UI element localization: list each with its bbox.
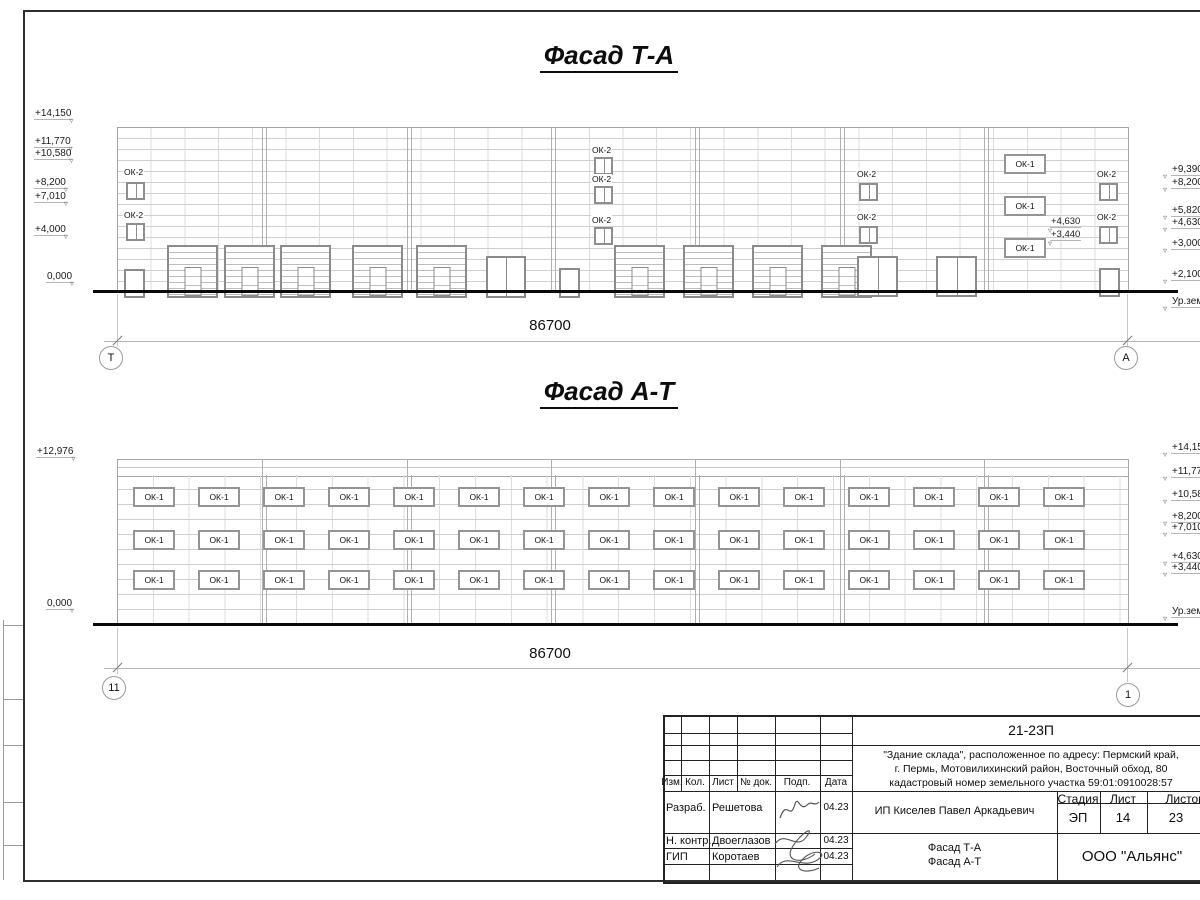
level-mark-icon: ▿ [1163,277,1167,286]
level-label: +8,200▿ [34,177,67,188]
facade-at-title: Фасад А-Т [479,376,739,407]
ok1-window: ОК-1 [328,570,370,590]
level-mark-icon: ▿ [64,199,68,208]
ok2-window [859,183,878,201]
level-mark-icon: ▿ [1163,172,1167,181]
ok1-window: ОК-1 [523,570,565,590]
ok2-window [594,227,613,245]
ok1-window: ОК-1 [1043,530,1085,550]
ok1-window: ОК-1 [1004,238,1046,258]
level-label: +10,580▿ [1171,489,1200,500]
ok1-window: ОК-1 [718,570,760,590]
ok1-window: ОК-1 [1004,196,1046,216]
level-mark-icon: ▿ [1163,450,1167,459]
level-label: +3,000▿ [1171,238,1200,249]
titleblock-date: 04.23 [818,835,854,846]
level-label: +11,770▿ [1171,466,1200,477]
ok1-window: ОК-1 [328,530,370,550]
parapet-joint [262,460,263,476]
ok1-window: ОК-1 [1043,487,1085,507]
titleblock-organization: ООО "Альянс" [1057,848,1200,865]
level-label: +9,390▿ [1171,164,1200,175]
level-label: +4,630▿ [1171,551,1200,562]
ok1-window: ОК-1 [718,530,760,550]
titleblock-name: Коротаев [712,851,760,863]
parapet-joint [840,460,841,476]
ok2-window-label: ОК-2 [591,215,612,225]
binding-strip-line [3,625,23,626]
titleblock-line [709,715,710,880]
ok1-window: ОК-1 [263,530,305,550]
ok2-window-label: ОК-2 [1096,212,1117,222]
titleblock-line [663,760,852,761]
ok1-window: ОК-1 [458,530,500,550]
ok2-window-label: ОК-2 [856,169,877,179]
ok2-window [1099,183,1118,201]
dimension-label: 86700 [495,645,605,662]
titleblock-stage-value: 14 [1093,810,1153,825]
binding-strip-line [3,620,4,880]
titleblock-name: Решетова [712,802,762,814]
titleblock-client: ИП Киселев Павел Аркадьевич [852,805,1057,817]
facade-ta-title: Фасад Т-А [479,40,739,71]
level-label: 0,000▿ [46,598,73,609]
bay-joint [695,475,700,625]
level-annotation: +4,630▿ [1050,216,1081,227]
level-label: +4,630▿ [1171,217,1200,228]
level-mark-icon: ▿ [1163,530,1167,539]
level-mark-icon: ▿ [70,606,74,615]
ok1-window: ОК-1 [393,570,435,590]
ok1-window: ОК-1 [848,487,890,507]
ok2-window [126,182,145,200]
ok1-window: ОК-1 [198,487,240,507]
ok2-window [594,157,613,175]
ok2-window-label: ОК-2 [123,210,144,220]
dimension-line [104,341,1200,342]
titleblock-column-header: Дата [814,777,858,788]
ok1-window: ОК-1 [588,487,630,507]
ok1-window: ОК-1 [263,487,305,507]
titleblock-stage-value: 23 [1146,810,1200,825]
parapet-joint [695,460,696,476]
ok1-window: ОК-1 [198,530,240,550]
ok1-window: ОК-1 [588,530,630,550]
ok1-window: ОК-1 [1004,154,1046,174]
level-label: +2,100▿ [1171,269,1200,280]
level-annotation: +3,440▿ [1050,229,1081,240]
level-mark-icon: ▿ [1163,246,1167,255]
ok1-window: ОК-1 [523,530,565,550]
level-mark-icon: ▿ [1163,213,1167,222]
level-label: +14,150▿ [34,108,72,119]
level-label: +11,770▿ [34,136,72,147]
ok1-window: ОК-1 [978,487,1020,507]
grid-bubble-1: 1 [1116,683,1140,707]
level-mark-icon: ▿ [1163,519,1167,528]
titleblock-role: Разраб. [666,802,706,814]
ok1-window: ОК-1 [978,530,1020,550]
ok1-window: ОК-1 [783,570,825,590]
binding-strip-line [3,802,23,803]
titleblock-column-header: № док. [734,777,778,788]
ok2-window-label: ОК-2 [591,145,612,155]
level-label: +8,200▿ [1171,177,1200,188]
level-mark-icon: ▿ [1163,497,1167,506]
ok1-window: ОК-1 [198,570,240,590]
ok1-window: ОК-1 [783,530,825,550]
titleblock-description: "Здание склада", расположенное по адресу… [854,748,1200,790]
ok2-window [859,226,878,244]
titleblock-column-header: Подп. [775,777,819,788]
ok1-window: ОК-1 [458,487,500,507]
level-label: +8,200▿ [1171,511,1200,522]
level-mark-icon: ▿ [71,454,75,463]
level-label: +12,976▿ [36,446,74,457]
ground-line [93,290,1178,293]
level-mark-icon: ▿ [1163,559,1167,568]
level-mark-icon: ▿ [1163,225,1167,234]
level-mark-icon: ▿ [1163,614,1167,623]
ok1-window: ОК-1 [1043,570,1085,590]
bay-joint [840,475,845,625]
ok1-window: ОК-1 [133,530,175,550]
level-mark-icon: ▿ [64,232,68,241]
binding-strip-line [3,845,23,846]
level-label: 0,000▿ [46,271,73,282]
ok2-window [1099,226,1118,244]
level-label: +14,150▿ [1171,442,1200,453]
level-mark-icon: ▿ [1163,185,1167,194]
parapet-joint [551,460,552,476]
ok1-window: ОК-1 [653,487,695,507]
titleblock-sheet-title: Фасад Т-А Фасад А-Т [852,841,1057,869]
ok1-window: ОК-1 [913,530,955,550]
level-mark-icon: ▿ [1163,570,1167,579]
level-mark-icon: ▿ [69,116,73,125]
ok2-window [594,186,613,204]
level-label: +7,010▿ [1171,522,1200,533]
titleblock-date: 04.23 [818,851,854,862]
level-label: +4,000▿ [34,224,67,235]
titleblock-line [663,833,1200,834]
drawing-sheet: { "colors": { "ink": "#1a1a1a", "drawing… [0,0,1200,900]
ok2-window [126,223,145,241]
titleblock-stage-header: Лист [1093,792,1153,806]
level-mark-icon: ▿ [1163,304,1167,313]
entrance-door [124,269,145,298]
level-label: +3,440▿ [1171,562,1200,573]
ok1-window: ОК-1 [848,570,890,590]
ok1-window: ОК-1 [913,487,955,507]
titleblock-role: Н. контр. [666,835,711,847]
extension-line [1127,628,1128,682]
titleblock-stage-header: Листов [1155,792,1200,806]
ok1-window: ОК-1 [848,530,890,550]
level-mark-icon: ▿ [1163,474,1167,483]
ok1-window: ОК-1 [718,487,760,507]
parapet-joint [407,460,408,476]
ground-line [93,623,1178,626]
ok1-window: ОК-1 [393,530,435,550]
ok1-window: ОК-1 [263,570,305,590]
titleblock-name: Двоеглазов [712,835,770,847]
ok1-window: ОК-1 [653,570,695,590]
dimension-label: 86700 [495,317,605,334]
ok2-window-label: ОК-2 [591,174,612,184]
grid-bubble-t: Т [99,346,123,370]
level-label: Ур.земли▿ [1171,606,1200,617]
grid-bubble-11: 11 [102,676,126,700]
ok1-window: ОК-1 [653,530,695,550]
ok1-window: ОК-1 [783,487,825,507]
titleblock-line [663,733,852,734]
ok1-window: ОК-1 [328,487,370,507]
level-label: Ур.земли▿ [1171,296,1200,307]
ok1-window: ОК-1 [588,570,630,590]
parapet-joint [984,460,985,476]
ok1-window: ОК-1 [458,570,500,590]
bay-joint [984,128,989,293]
ok2-window-label: ОК-2 [1096,169,1117,179]
ok2-window-label: ОК-2 [856,212,877,222]
facade-at-drawing: ОК-1ОК-1ОК-1ОК-1ОК-1ОК-1ОК-1ОК-1ОК-1ОК-1… [117,475,1129,625]
level-label: +7,010▿ [34,191,67,202]
ok1-window: ОК-1 [393,487,435,507]
titleblock-line [663,745,1200,746]
binding-strip-line [3,745,23,746]
binding-strip-line [3,699,23,700]
signature [777,792,821,826]
ok1-window: ОК-1 [133,570,175,590]
level-mark-icon: ▿ [70,279,74,288]
ok1-window: ОК-1 [978,570,1020,590]
titleblock-project-code: 21-23П [852,722,1200,738]
bay-joint [551,128,556,293]
titleblock-date: 04.23 [818,802,854,813]
level-mark-icon: ▿ [69,156,73,165]
ok1-window: ОК-1 [913,570,955,590]
ok2-window-label: ОК-2 [123,167,144,177]
entrance-door [559,268,580,298]
titleblock-line [663,775,852,776]
grid-bubble-a: А [1114,346,1138,370]
level-label: +5,820▿ [1171,205,1200,216]
titleblock-role: ГИП [666,851,688,863]
level-label: +10,580▿ [34,148,72,159]
bay-joint [407,128,412,293]
facade-ta-drawing: ОК-2ОК-2ОК-2ОК-2ОК-2ОК-2ОК-2ОК-2ОК-2ОК-1… [117,127,1129,293]
ok1-window: ОК-1 [523,487,565,507]
ok1-window: ОК-1 [133,487,175,507]
dimension-line [104,668,1200,669]
